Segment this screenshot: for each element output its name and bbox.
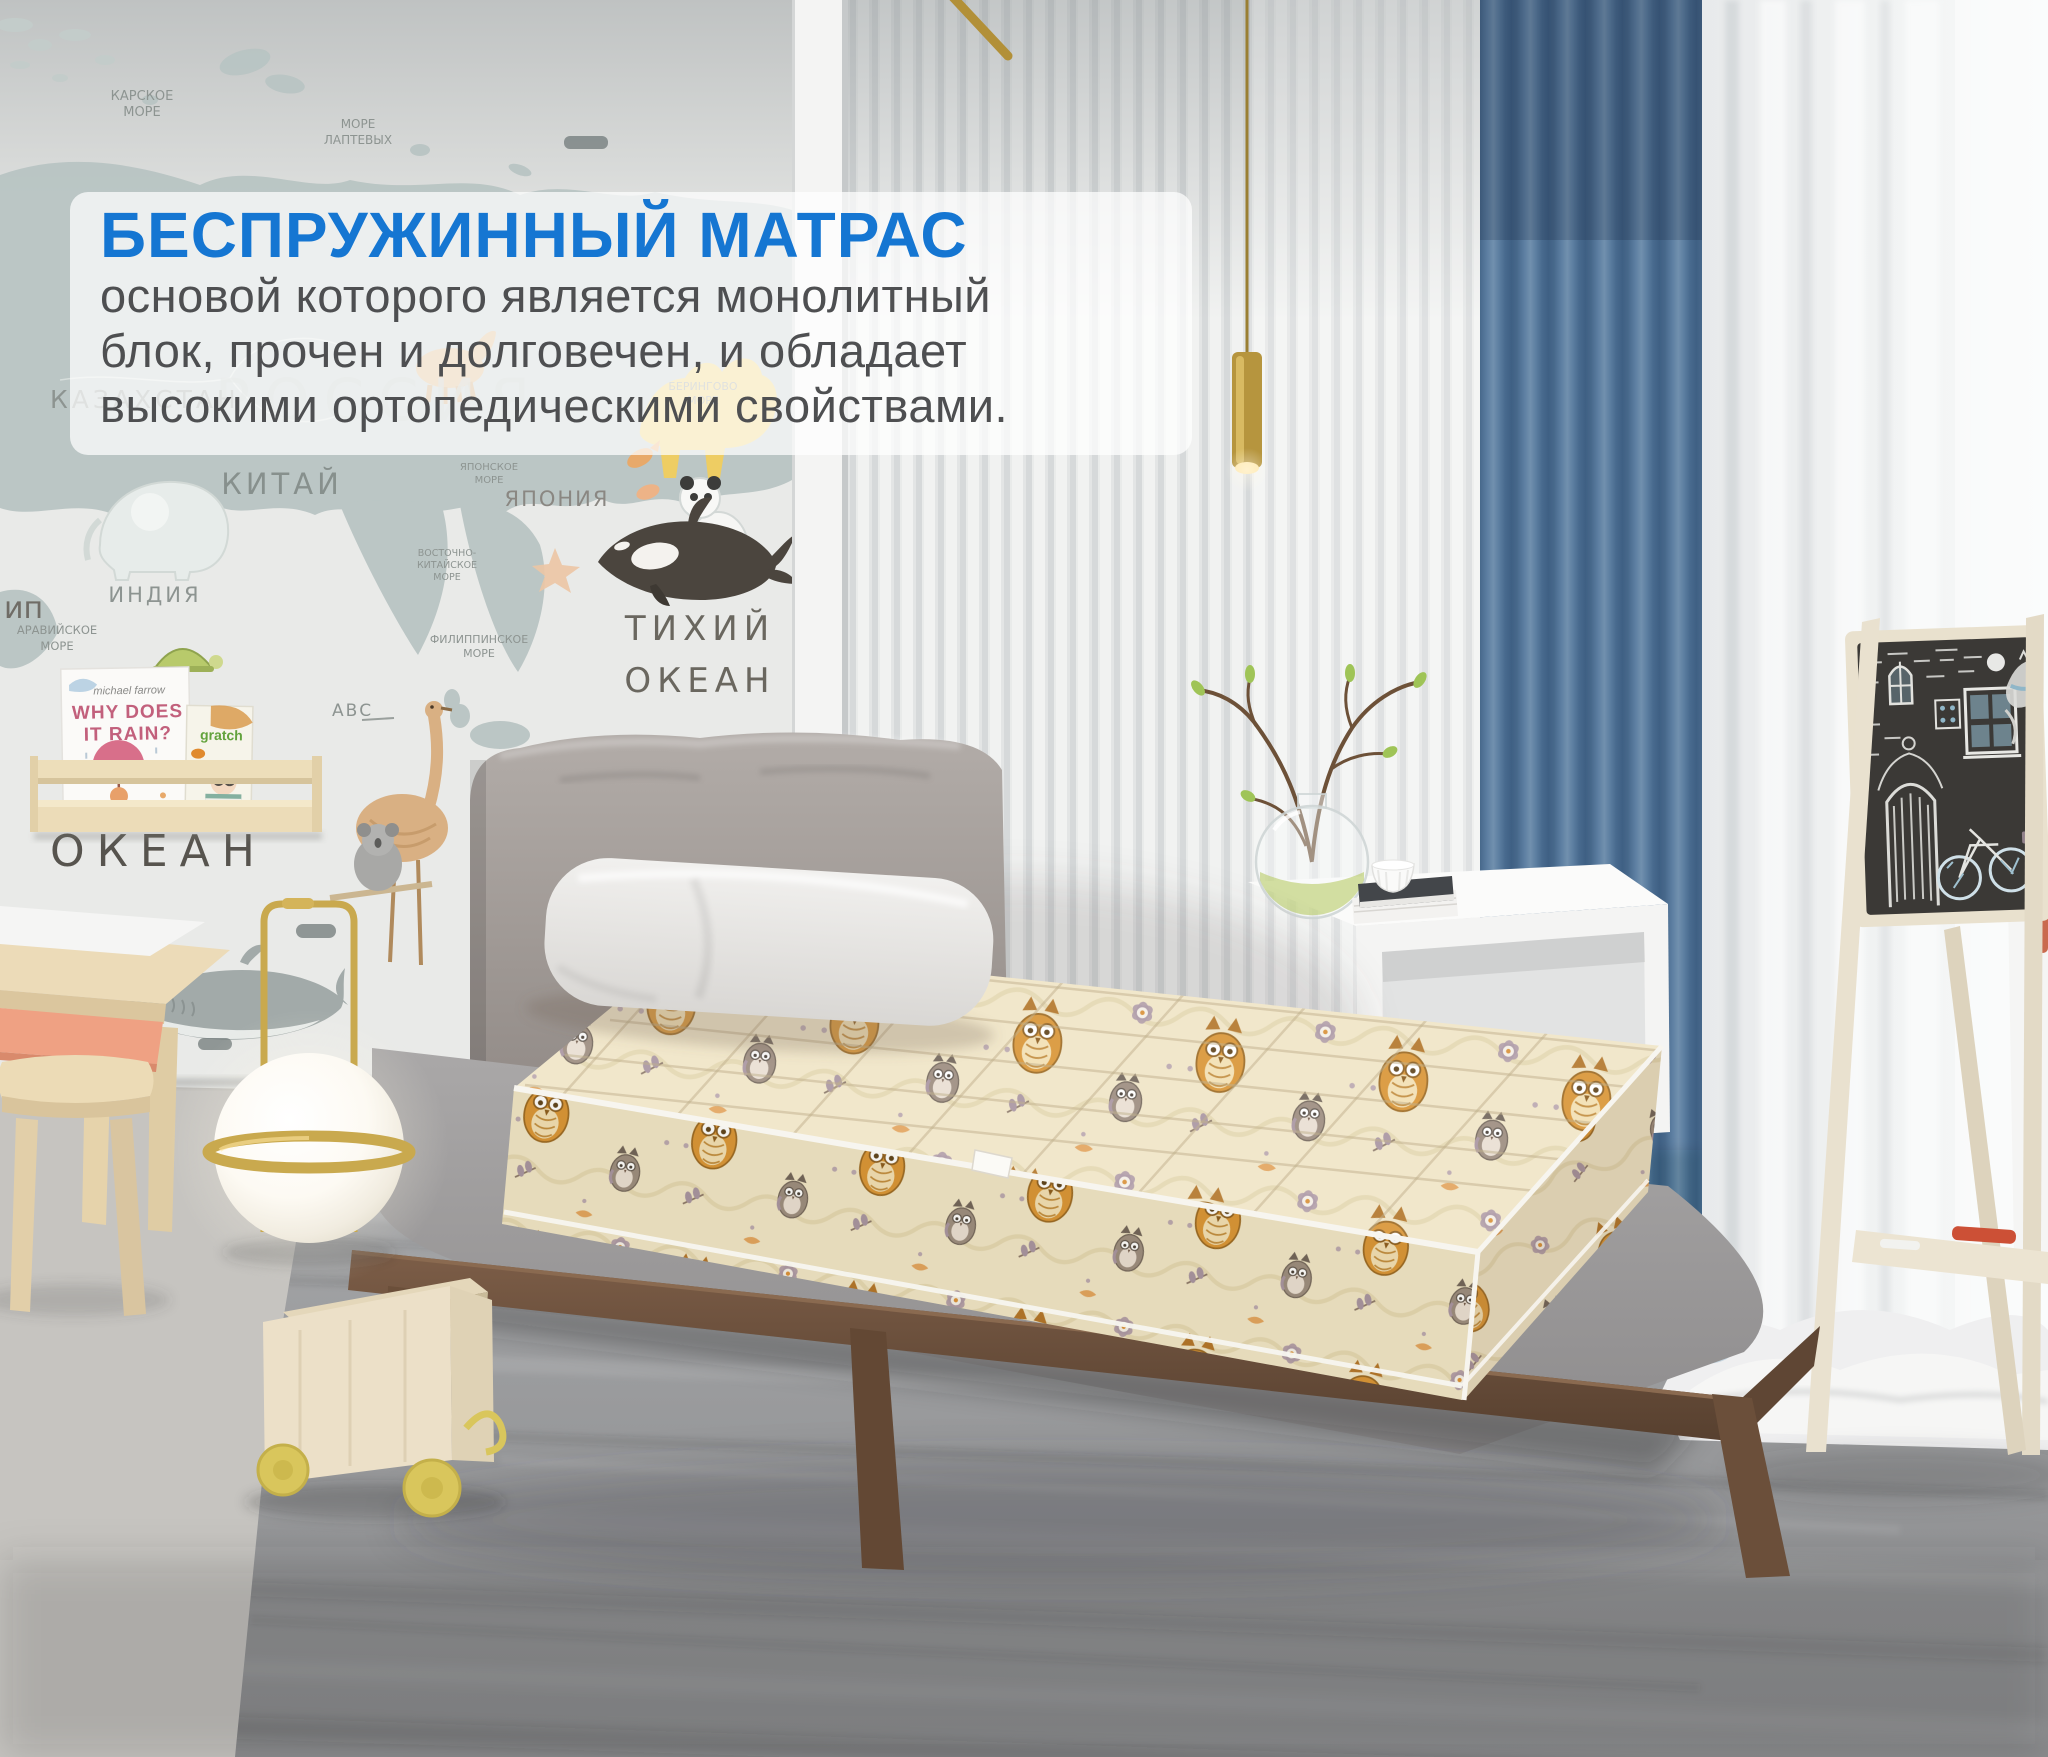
map-label-laptev-sea: МОРЕ [341, 117, 376, 131]
product-photo-scene: КАРСКОЕ МОРЕ МОРЕ ЛАПТЕВЫХ БЕРИНГОВО МОР… [0, 0, 2048, 1757]
map-label-laptev-sea-2: ЛАПТЕВЫХ [324, 133, 392, 147]
bookshelf-front-rail [30, 760, 322, 778]
map-label-arabian-sea-2: МОРЕ [40, 639, 73, 653]
map-label-east-china-sea-2: КИТАЙСКОЕ [417, 559, 477, 571]
promo-title: БЕСПРУЖИННЫЙ МАТРАС [100, 202, 1192, 268]
map-label-kara-sea: КАРСКОЕ [111, 89, 174, 104]
book1-title-line1: WHY DOES [72, 701, 183, 724]
map-label-east-china-sea-3: МОРЕ [433, 572, 460, 583]
map-label-pacific: ТИХИЙ [624, 608, 775, 649]
map-label-philippine-sea: ФИЛИППИНСКОЕ [430, 633, 528, 646]
book1-author: michael farrow [93, 684, 166, 697]
map-label-japan-sea: ЯПОНСКОЕ [460, 462, 518, 473]
promo-line-1: основой которого является монолитный [100, 268, 1192, 323]
map-label-japan-sea-2: МОРЕ [475, 475, 504, 486]
map-label-edge-partial: ип [4, 591, 43, 626]
map-label-kara-sea-2: МОРЕ [123, 105, 161, 120]
book-why-does-it-rain: michael farrow WHY DOES IT RAIN? [61, 667, 192, 819]
map-label-china: КИТАЙ [221, 467, 343, 501]
map-label-pacific-2: ОКЕАН [624, 661, 775, 701]
promo-caption-box: БЕСПРУЖИННЫЙ МАТРАС основой которого явл… [70, 192, 1192, 455]
map-label-japan: ЯПОНИЯ [504, 487, 609, 511]
promo-line-2: блок, прочен и долговечен, и обладает [100, 323, 1192, 378]
lamp-globe [214, 1053, 404, 1243]
map-label-philippine-sea-2: МОРЕ [463, 647, 495, 660]
map-label-abc: АВС [332, 701, 373, 721]
map-label-india: ИНДИЯ [108, 583, 201, 607]
book2-title: gratch [200, 727, 243, 744]
map-label-east-china-sea: ВОСТОЧНО- [418, 548, 476, 559]
promo-line-3: высокими ортопедическими свойствами. [100, 378, 1192, 433]
